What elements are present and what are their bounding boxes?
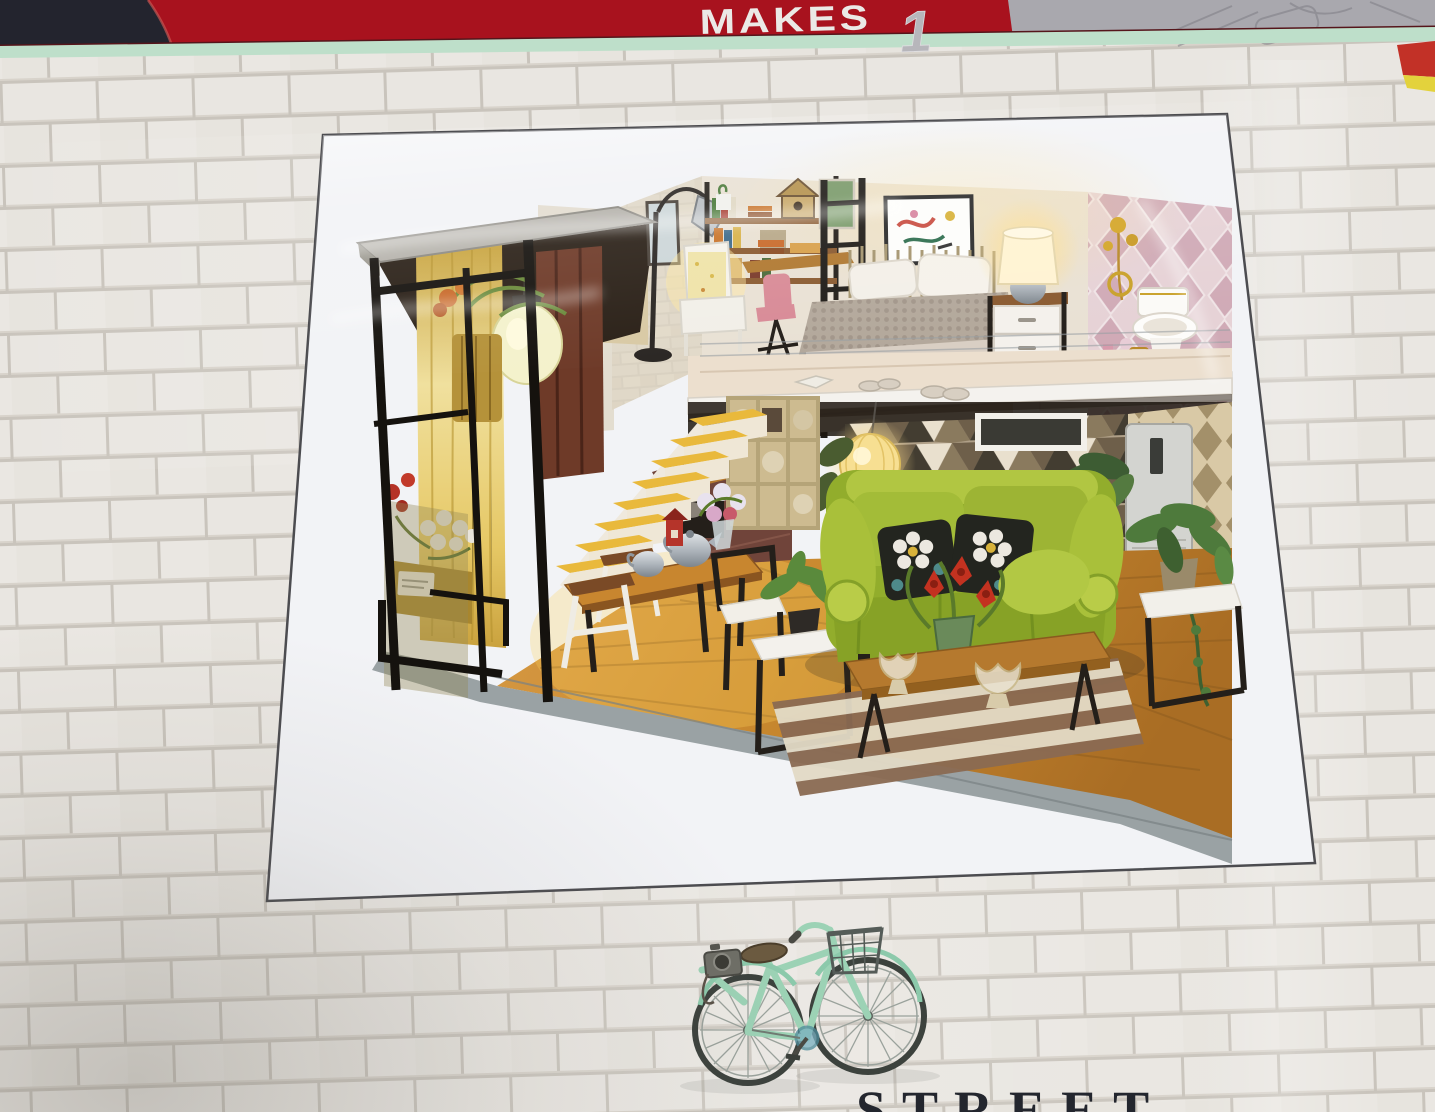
store-shelf-product-photo: MAKES 1 bbox=[0, 0, 1435, 1112]
street-partial-text: STREET bbox=[856, 1080, 1165, 1112]
sheet-sheen bbox=[300, 114, 1250, 380]
makes-label: MAKES bbox=[699, 0, 872, 42]
corner-shade bbox=[0, 500, 900, 1112]
framed-art-partial bbox=[978, 416, 1084, 448]
banner-navy-corner bbox=[0, 0, 172, 48]
